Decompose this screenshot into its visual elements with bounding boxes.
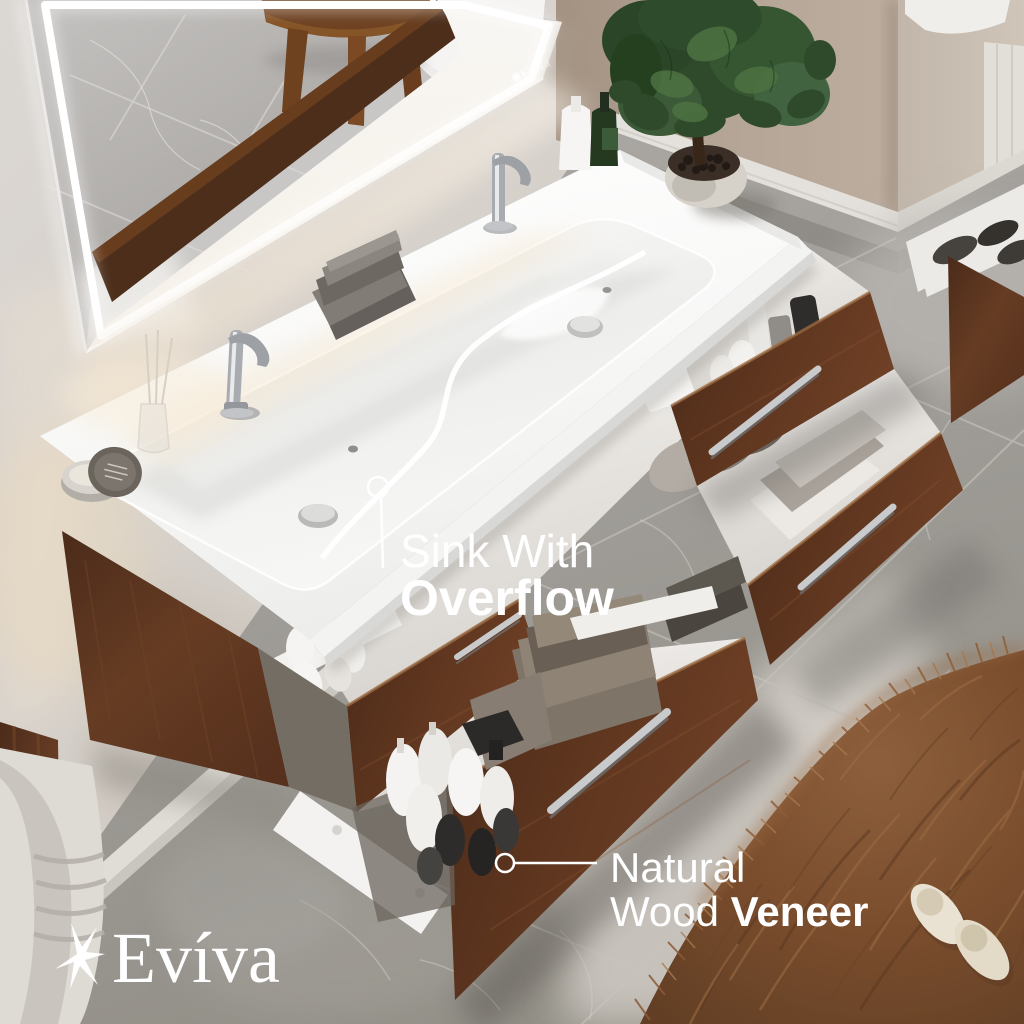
svg-text:Wood Veneer: Wood Veneer [610,888,868,935]
svg-text:Natural: Natural [610,844,745,891]
svg-text:Evíva: Evíva [112,918,280,998]
svg-text:Overflow: Overflow [400,570,614,626]
